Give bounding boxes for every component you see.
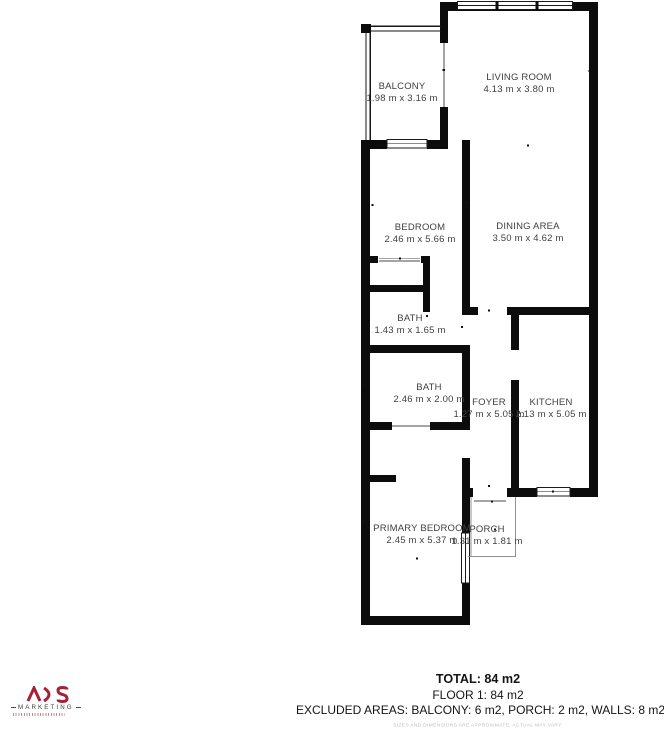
- logo-letter-s: [58, 688, 67, 702]
- disclaimer-text: SIZES AND DIMENSIONS ARE APPROXIMATE, AC…: [329, 723, 627, 728]
- balcony-railing: [366, 26, 441, 140]
- logo-mark: [11, 686, 87, 703]
- living-room-top-windows: [458, 1, 573, 11]
- excluded-areas-text: EXCLUDED AREAS: BALCONY: 6 m2, PORCH: 2 …: [296, 703, 660, 717]
- porch-outline: [468, 497, 516, 557]
- logo-letter-d: [44, 688, 49, 701]
- floor-area-text: FLOOR 1: 84 m2: [296, 688, 660, 702]
- logo-tagline-strip: [13, 713, 65, 716]
- company-logo: MARKETING: [11, 686, 87, 716]
- logo-accent-line-right: [76, 707, 81, 708]
- total-area-text: TOTAL: 84 m2: [296, 672, 660, 686]
- floorplan-svg: [0, 0, 664, 736]
- bedroom-top-window: [387, 140, 427, 149]
- primary-bedroom-window: [462, 533, 470, 583]
- logo-sub-text: MARKETING: [16, 704, 76, 711]
- logo-letter-a: [28, 688, 40, 701]
- floorplan-page: { "theme": { "accent": "#a52036", "wall_…: [0, 0, 664, 736]
- logo-sub-row: MARKETING: [11, 704, 87, 711]
